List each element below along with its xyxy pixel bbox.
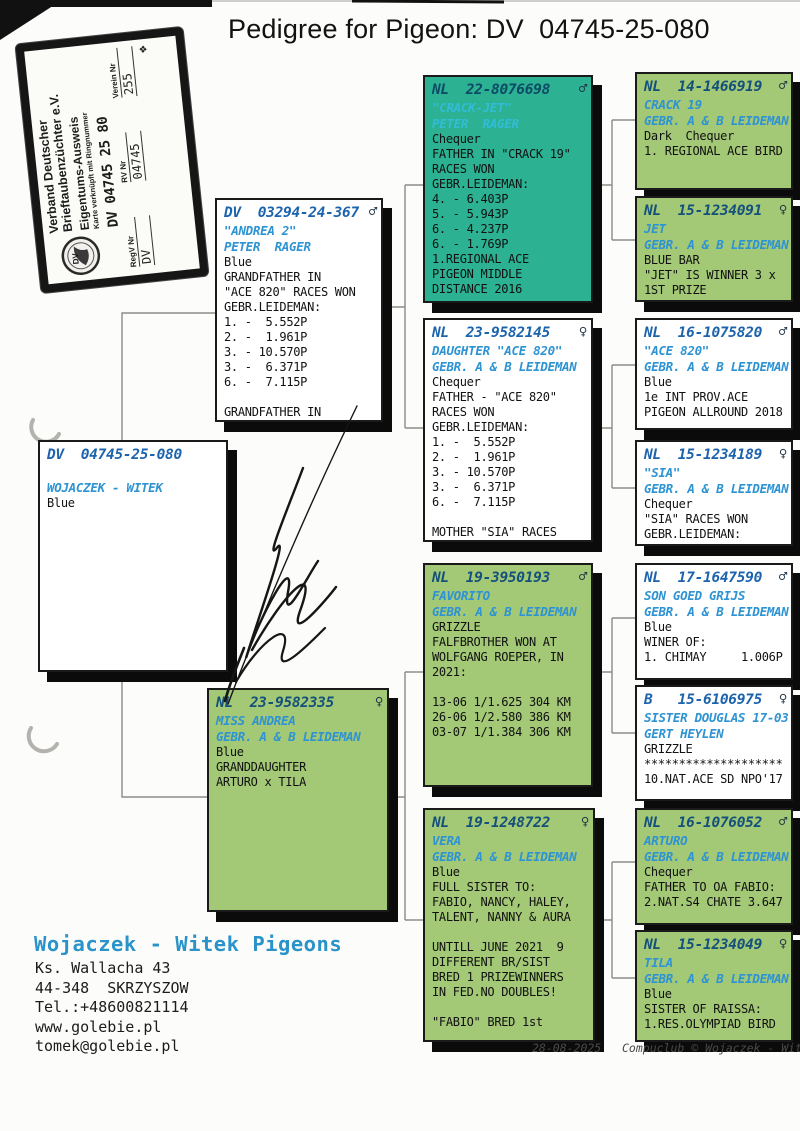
box-body-text: Blue bbox=[47, 496, 219, 511]
pigeon-name: "CRACK-JET" bbox=[432, 100, 584, 116]
pedigree-box-grandfather-paternal: NL 22-8076698♂ "CRACK-JET" PETER RAGER C… bbox=[423, 75, 593, 303]
box-body-text: GRIZZLEFALFBROTHER WON ATWOLFGANG ROEPER… bbox=[432, 620, 584, 740]
pedigree-box-subject: DV 04745-25-080 WOJACZEK - WITEK Blue bbox=[38, 440, 228, 672]
sex-symbol: ♀ bbox=[779, 935, 787, 954]
sex-symbol: ♀ bbox=[581, 813, 589, 832]
pedigree-box-great-grandparent: NL 14-1466919♂ CRACK 19 GEBR. A & B LEID… bbox=[635, 72, 793, 190]
owner-name: PETER RAGER bbox=[432, 116, 584, 132]
svg-text:DV: DV bbox=[71, 252, 81, 265]
ring-number: DV 04745-25-080 bbox=[47, 446, 219, 465]
pedigree-box-grandfather-maternal: NL 19-3950193♂ FAVORITO GEBR. A & B LEID… bbox=[423, 563, 593, 787]
box-body-text: ChequerFATHER IN "CRACK 19"RACES WONGEBR… bbox=[432, 132, 584, 297]
ring-number: NL 14-1466919♂ bbox=[644, 78, 784, 97]
ring-number: B 15-6106975♀ bbox=[644, 691, 784, 710]
box-body-text: BlueWINER OF:1. CHIMAY 1.006P bbox=[644, 620, 784, 665]
pigeon-name: WOJACZEK - WITEK bbox=[47, 480, 219, 496]
pedigree-box-great-grandparent: NL 16-1076052♂ ARTURO GEBR. A & B LEIDEM… bbox=[635, 808, 793, 925]
pedigree-box-great-grandparent: NL 16-1075820♂ "ACE 820" GEBR. A & B LEI… bbox=[635, 318, 793, 430]
sex-symbol: ♂ bbox=[369, 203, 377, 222]
ring-number: NL 19-3950193♂ bbox=[432, 569, 584, 588]
pigeon-name: VERA bbox=[432, 833, 586, 849]
pedigree-box-great-grandparent: NL 15-1234189♀ "SIA" GEBR. A & B LEIDEMA… bbox=[635, 440, 793, 546]
owner-name: PETER RAGER bbox=[224, 239, 374, 255]
sex-symbol: ♂ bbox=[779, 77, 787, 96]
owner-name: GERT HEYLEN bbox=[644, 726, 784, 742]
pedigree-box-grandmother-maternal: NL 19-1248722♀ VERA GEBR. A & B LEIDEMAN… bbox=[423, 808, 595, 1042]
owner-name: GEBR. A & B LEIDEMAN bbox=[644, 604, 784, 620]
box-body-text: ChequerFATHER - "ACE 820"RACES WONGEBR.L… bbox=[432, 375, 584, 540]
pigeon-name: DAUGHTER "ACE 820" bbox=[432, 343, 584, 359]
sex-symbol: ♀ bbox=[375, 693, 383, 712]
ring-number: NL 23-9582145♀ bbox=[432, 324, 584, 343]
box-body-text: Dark Chequer1. REGIONAL ACE BIRD bbox=[644, 129, 784, 159]
box-body-text: Chequer"SIA" RACES WONGEBR.LEIDEMAN: bbox=[644, 497, 784, 542]
sex-symbol: ♂ bbox=[779, 323, 787, 342]
pedigree-box-great-grandparent: NL 15-1234049♀ TILA GEBR. A & B LEIDEMAN… bbox=[635, 930, 793, 1042]
owner-name: GEBR. A & B LEIDEMAN bbox=[644, 971, 784, 987]
box-body-text: BLUE BAR"JET" IS WINNER 3 x1ST PRIZE bbox=[644, 253, 784, 298]
pedigree-box-grandmother-paternal: NL 23-9582145♀ DAUGHTER "ACE 820" GEBR. … bbox=[423, 318, 593, 542]
ring-number: NL 15-1234049♀ bbox=[644, 936, 784, 955]
hole-punch bbox=[29, 728, 57, 751]
sex-symbol: ♀ bbox=[779, 201, 787, 220]
owner-name: GEBR. A & B LEIDEMAN bbox=[432, 604, 584, 620]
owner-name: GEBR. A & B LEIDEMAN bbox=[644, 237, 784, 253]
loft-address: Ks. Wallacha 4344-348 SKRZYSZOWTel.:+486… bbox=[35, 959, 189, 1057]
page-title: Pedigree for Pigeon: DV 04745-25-080 bbox=[228, 14, 710, 45]
pigeon-name: "ANDREA 2" bbox=[224, 223, 374, 239]
sex-symbol: ♂ bbox=[779, 813, 787, 832]
owner-name: GEBR. A & B LEIDEMAN bbox=[432, 849, 586, 865]
pedigree-box-mother: NL 23-9582335♀ MISS ANDREA GEBR. A & B L… bbox=[207, 688, 389, 912]
sex-symbol: ♀ bbox=[779, 690, 787, 709]
sex-symbol: ♂ bbox=[779, 568, 787, 587]
box-body-text: Blue1e INT PROV.ACEPIGEON ALLROUND 2018 bbox=[644, 375, 784, 420]
owner-name: GEBR. A & B LEIDEMAN bbox=[432, 359, 584, 375]
pigeon-name: SON GOED GRIJS bbox=[644, 588, 784, 604]
hole-punch bbox=[31, 420, 59, 442]
pigeon-name: FAVORITO bbox=[432, 588, 584, 604]
sex-symbol: ♀ bbox=[579, 323, 587, 342]
sex-symbol: ♂ bbox=[579, 80, 587, 99]
owner-name: GEBR. A & B LEIDEMAN bbox=[644, 849, 784, 865]
owner-name: GEBR. A & B LEIDEMAN bbox=[644, 113, 784, 129]
owner-name: GEBR. A & B LEIDEMAN bbox=[644, 481, 784, 497]
pedigree-box-great-grandparent: NL 15-1234091♀ JET GEBR. A & B LEIDEMAN … bbox=[635, 196, 793, 302]
print-info: 28-08-2025 Compuclub © Wojaczek - Witek … bbox=[532, 1041, 800, 1055]
ring-number: DV 03294-24-367♂ bbox=[224, 204, 374, 223]
ownership-stamp: DV Verband Deutscher Brieftaubenzüchter … bbox=[15, 27, 208, 293]
pigeon-name: SISTER DOUGLAS 17-03 bbox=[644, 710, 784, 726]
ring-number: NL 22-8076698♂ bbox=[432, 81, 584, 100]
ring-number: NL 23-9582335♀ bbox=[216, 694, 380, 713]
owner-name: GEBR. A & B LEIDEMAN bbox=[216, 729, 380, 745]
pigeon-name: MISS ANDREA bbox=[216, 713, 380, 729]
loft-name: Wojaczek - Witek Pigeons bbox=[34, 932, 342, 956]
pigeon-glyph-icon: ❖ bbox=[135, 45, 150, 53]
dv-federation-logo-icon: DV bbox=[59, 234, 103, 278]
box-body-text: BlueGRANDFATHER IN"ACE 820" RACES WONGEB… bbox=[224, 255, 374, 420]
box-body-text: BlueFULL SISTER TO:FABIO, NANCY, HALEY,T… bbox=[432, 865, 586, 1030]
ring-number: NL 17-1647590♂ bbox=[644, 569, 784, 588]
pedigree-box-great-grandparent: NL 17-1647590♂ SON GOED GRIJS GEBR. A & … bbox=[635, 563, 793, 680]
sex-symbol: ♀ bbox=[779, 445, 787, 464]
pedigree-box-father: DV 03294-24-367♂ "ANDREA 2" PETER RAGER … bbox=[215, 198, 383, 422]
pigeon-name: "ACE 820" bbox=[644, 343, 784, 359]
box-body-text: ChequerFATHER TO OA FABIO:2.NAT.S4 CHATE… bbox=[644, 865, 784, 910]
pigeon-name: CRACK 19 bbox=[644, 97, 784, 113]
pedigree-box-great-grandparent: B 15-6106975♀ SISTER DOUGLAS 17-03 GERT … bbox=[635, 685, 793, 801]
box-body-text: BlueGRANDDAUGHTERARTURO x TILA bbox=[216, 745, 380, 790]
sex-symbol: ♂ bbox=[579, 568, 587, 587]
ring-number: NL 16-1076052♂ bbox=[644, 814, 784, 833]
pedigree-document-page: Pedigree for Pigeon: DV 04745-25-080 DV … bbox=[0, 0, 800, 1131]
ring-number: NL 15-1234189♀ bbox=[644, 446, 784, 465]
ring-number: NL 16-1075820♂ bbox=[644, 324, 784, 343]
ring-number: NL 15-1234091♀ bbox=[644, 202, 784, 221]
pigeon-name: ARTURO bbox=[644, 833, 784, 849]
pigeon-name: JET bbox=[644, 221, 784, 237]
box-body-text: BlueSISTER OF RAISSA:1.RES.OLYMPIAD BIRD bbox=[644, 987, 784, 1032]
pigeon-name: "SIA" bbox=[644, 465, 784, 481]
owner-name: GEBR. A & B LEIDEMAN bbox=[644, 359, 784, 375]
pigeon-name: TILA bbox=[644, 955, 784, 971]
ring-number: NL 19-1248722♀ bbox=[432, 814, 586, 833]
box-body-text: GRIZZLE********************10.NAT.ACE SD… bbox=[644, 742, 784, 787]
